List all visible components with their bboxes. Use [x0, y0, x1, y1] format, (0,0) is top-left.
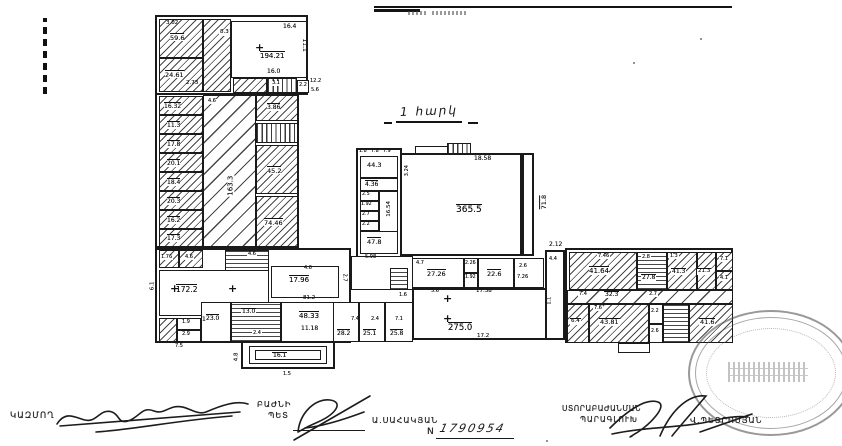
- room-label: 7.5: [175, 344, 183, 349]
- room-label: 2.6: [519, 264, 527, 269]
- room-label: 1.5: [283, 372, 291, 377]
- room: [159, 318, 177, 342]
- room: [159, 115, 203, 134]
- room-label: 28.2: [337, 329, 350, 337]
- room: [203, 95, 256, 247]
- room-label: 25.8: [390, 329, 403, 337]
- role-department-line2: ՊԵՏ: [268, 411, 289, 420]
- column-cross-mark: +: [255, 42, 264, 53]
- role-compiler: ԿԱԶՄՈՂ: [10, 411, 55, 421]
- room-label: 17.3: [167, 234, 180, 242]
- room: [159, 210, 203, 229]
- room: [159, 191, 203, 210]
- room-label: 1.76: [160, 255, 173, 260]
- room: [545, 250, 565, 340]
- room-label: 7.1: [719, 257, 729, 262]
- room-label: 7.8: [371, 149, 379, 154]
- room-label: 2.9: [182, 332, 190, 337]
- room-label: 3.02: [166, 21, 178, 27]
- room-label: 1.9: [182, 320, 190, 325]
- room-label: 3.24: [405, 165, 410, 176]
- room: [159, 172, 203, 191]
- room-label: 7.9: [383, 149, 391, 154]
- room-label: 4.1: [719, 276, 729, 281]
- room-label: 7.26: [517, 275, 528, 280]
- room-label: 2.12: [549, 242, 562, 248]
- room-label: 2.6: [651, 329, 659, 334]
- room-label: 3.1: [271, 81, 281, 86]
- room-label: 25.1: [363, 329, 376, 337]
- room-label: 43.81: [599, 318, 620, 326]
- column-cross-mark: +: [443, 293, 452, 304]
- room-label: 365.5: [456, 204, 482, 215]
- floor-title: 1 հարկ: [400, 103, 458, 119]
- room-label: 32.3: [604, 291, 619, 298]
- room: [522, 153, 534, 256]
- room-label: 1.8: [359, 149, 367, 154]
- room-label: 4.6: [184, 255, 194, 260]
- room-label: 41.64: [589, 266, 609, 275]
- room-label: 27.26: [427, 269, 446, 277]
- room-label: 16.1: [272, 352, 287, 359]
- room-label: 47.8: [367, 237, 381, 245]
- room-label: 6.4: [570, 318, 581, 325]
- room-label: 2.8: [641, 255, 651, 260]
- room-label: 4.8: [234, 353, 240, 362]
- room: [663, 304, 689, 343]
- room-label: 13.0: [241, 308, 256, 315]
- room-label: 4.7: [416, 261, 424, 266]
- room-label: 20.1: [167, 159, 180, 167]
- room-label: 16.0: [267, 69, 280, 75]
- room-label: 12.2: [310, 79, 321, 84]
- room-label: 74.46: [264, 218, 283, 226]
- room-label: 16.32: [164, 102, 181, 110]
- scanned-floor-plan-page: 1 հարկ 3.0259.624.612.738.316.4194.2116.…: [0, 0, 842, 446]
- room-label: 6.1: [150, 282, 156, 291]
- room-label: 2.4: [252, 331, 262, 336]
- room-label: 7.1: [395, 317, 403, 322]
- role-subdivision-line2: ՊԱՐԱԳԼՈՒԽ: [580, 415, 638, 424]
- column-cross-mark: +: [228, 283, 237, 294]
- room-label: 17.38: [476, 289, 492, 295]
- room-label: 2.73: [186, 81, 198, 87]
- room-label: 41.3: [671, 268, 686, 275]
- room-label: 81.2: [303, 296, 315, 302]
- room-label: 18.4: [167, 178, 180, 186]
- room-label: 2.7: [362, 212, 370, 217]
- room-label: 172.2: [176, 284, 197, 293]
- room-label: 4.6: [247, 252, 257, 257]
- room-label: 2.2: [299, 83, 307, 88]
- room-label: 41.6: [699, 318, 715, 326]
- room-label: 2.7: [341, 274, 346, 282]
- room-label: 1.92: [465, 275, 476, 280]
- sheet-number: 1790954: [438, 421, 507, 435]
- room-label: 2.26: [465, 261, 476, 266]
- room-label: 2.2: [362, 222, 370, 227]
- room-label: 5.6: [311, 88, 319, 93]
- room: [159, 153, 203, 172]
- room-label: 4.6: [304, 266, 312, 271]
- room-label: 24.61: [165, 70, 184, 78]
- room-label: 22.6: [487, 269, 501, 277]
- room-label: 11.18: [301, 326, 318, 332]
- room-label: 16.4: [283, 24, 296, 30]
- room-label: 17.96: [289, 275, 309, 284]
- signature-middle-underline: [293, 430, 365, 431]
- room-label: 2.5: [362, 192, 370, 197]
- sheet-number-underline: [436, 438, 514, 439]
- room-label: 4.6: [207, 99, 217, 104]
- room-label: 4.4: [549, 257, 557, 262]
- room: [447, 143, 471, 154]
- room-label: 1.1: [547, 297, 552, 305]
- room-label: 21.3: [697, 268, 711, 275]
- room-label: 18.58: [474, 156, 491, 162]
- room-label: 48.33: [299, 311, 319, 320]
- room: [233, 78, 267, 93]
- room-label: 5.6: [431, 289, 439, 294]
- room-label: 45.2: [267, 166, 281, 174]
- room-label: 7.6: [593, 306, 603, 311]
- name-subdivision-head: Վ.ՊԵՏՐՈՍՅԱՆ: [690, 416, 763, 425]
- plan-canvas: 3.0259.624.612.738.316.4194.2116.011.13.…: [0, 0, 842, 446]
- room-label: 17.2: [477, 334, 489, 340]
- name-department-head: Ա.ՍԱՀԱԿՅԱՆ: [372, 416, 438, 425]
- role-department-line1: ԲԱԺՆԻ: [257, 400, 291, 409]
- room-label: 16.2: [167, 216, 180, 224]
- room-label: 27.8: [641, 274, 656, 281]
- room: [159, 229, 203, 247]
- room-label: 1.92: [361, 202, 372, 207]
- room-label: 2.2: [651, 309, 659, 314]
- room-label: 71.8: [539, 195, 547, 209]
- room: [255, 350, 321, 360]
- room-label: 7.46: [597, 254, 610, 259]
- role-subdivision-line1: ՍՏՈՐԱԲԱԺԱՆՄԱՆ: [562, 404, 641, 413]
- room-label: 4.36: [365, 180, 378, 188]
- room: [256, 123, 298, 143]
- room-label: 17.8: [167, 140, 180, 148]
- room-label: 1.3: [669, 254, 679, 259]
- room: [159, 134, 203, 153]
- room: [390, 268, 408, 290]
- room-label: 7.4: [578, 292, 588, 297]
- room-label: 23.0: [206, 314, 219, 322]
- column-cross-mark: +: [443, 313, 452, 324]
- room-label: 11.3: [167, 121, 180, 129]
- room-label: 2.4: [371, 317, 379, 322]
- room-label: 163.3: [227, 175, 234, 197]
- room-label: 8.3: [219, 30, 230, 36]
- room-label: 3.86: [267, 103, 280, 111]
- column-cross-mark: +: [170, 283, 179, 294]
- room-label: 44.3: [367, 162, 381, 169]
- room-label: 16.54: [387, 201, 393, 217]
- room-label: 59.6: [170, 33, 184, 41]
- room: [618, 343, 650, 353]
- room-label: 1.6: [399, 293, 407, 298]
- room-label: 5.98: [365, 255, 376, 260]
- room-label: 20.3: [167, 197, 180, 205]
- room-label: 2.7: [648, 292, 658, 297]
- room-label: 7.4: [351, 317, 359, 322]
- room-label: 11.1: [301, 38, 307, 51]
- sheet-number-label: N: [427, 427, 435, 437]
